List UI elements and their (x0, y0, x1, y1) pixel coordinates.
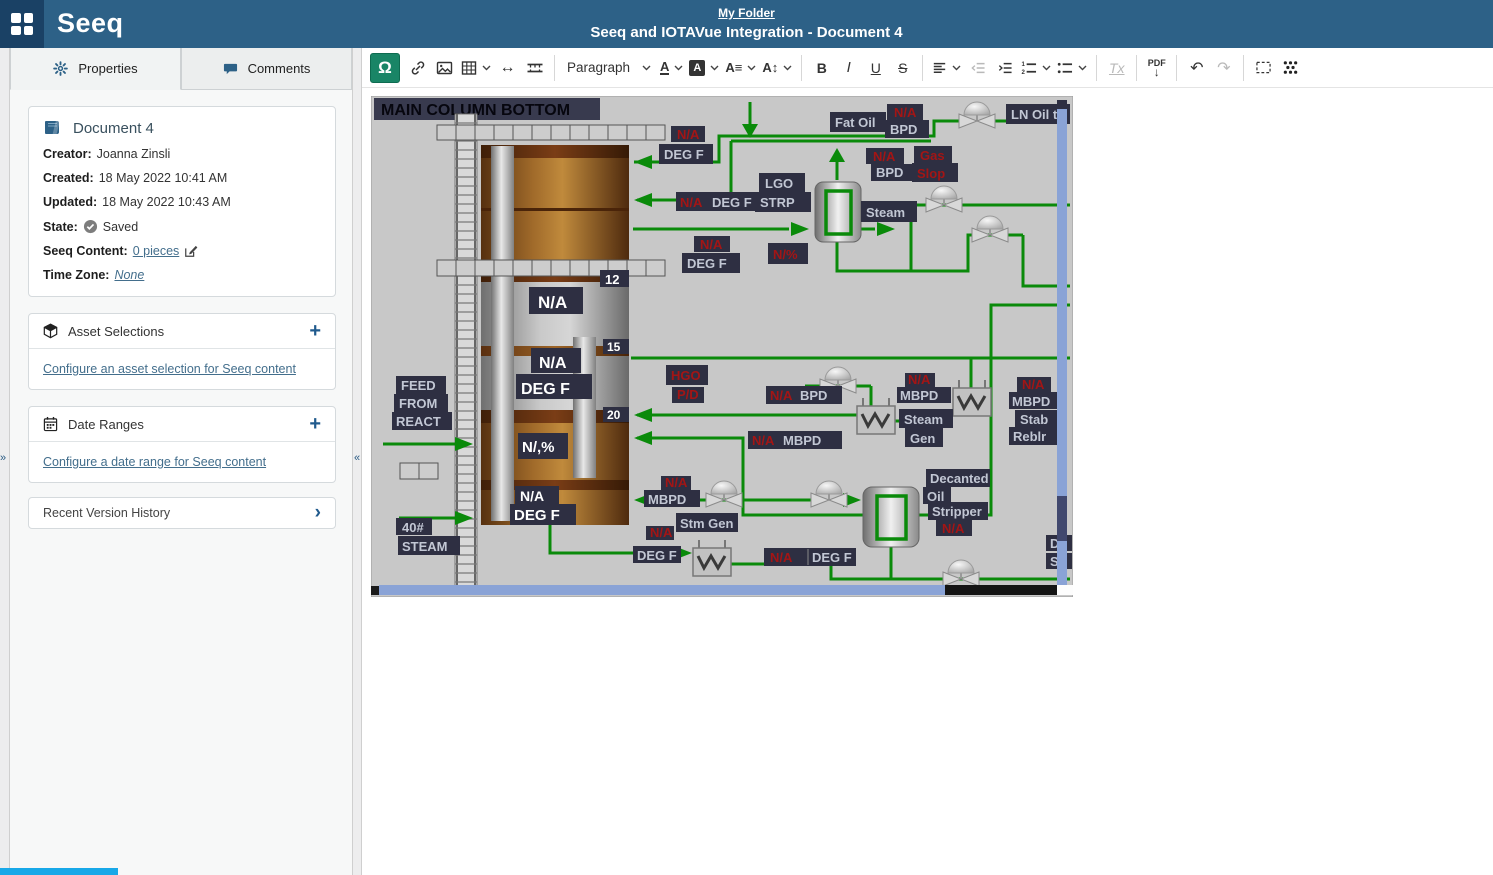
svg-text:N/A: N/A (908, 372, 931, 387)
redo-button: ↷ (1210, 53, 1237, 83)
state-label: State: (43, 220, 78, 234)
chevron-down-icon (482, 65, 491, 71)
svg-text:Decanted: Decanted (930, 471, 989, 486)
border-toggle-button[interactable] (1250, 53, 1277, 83)
loading-progress-bar (0, 868, 118, 875)
tab-comments-label: Comments (248, 61, 311, 76)
dot-pattern-icon (1282, 60, 1299, 75)
svg-text:REACT: REACT (396, 414, 441, 429)
bullet-list-icon (1057, 60, 1073, 75)
bold-button[interactable]: B (808, 53, 835, 83)
svg-text:LGO: LGO (765, 176, 793, 191)
time-zone-link[interactable]: None (114, 268, 144, 282)
bullet-list-button[interactable] (1054, 53, 1090, 83)
table-icon (461, 60, 477, 76)
insert-image-button[interactable] (431, 53, 458, 83)
document-title: Seeq and IOTAVue Integration - Document … (0, 24, 1493, 41)
paragraph-style-value: Paragraph (567, 60, 630, 75)
dashed-border-icon (1255, 60, 1272, 75)
calendar-icon (43, 416, 58, 432)
hmi-vertical-scrollbar[interactable] (1057, 100, 1067, 585)
chevron-down-icon (1042, 65, 1051, 71)
insert-seeq-content-button[interactable]: Ω (370, 53, 400, 83)
sidebar-expand-strip[interactable]: » (0, 48, 10, 875)
svg-text:N/A: N/A (538, 293, 567, 312)
numbered-list-icon: 1 2 (1021, 60, 1037, 75)
version-history-card[interactable]: Recent Version History › (28, 497, 336, 529)
svg-text:N/%: N/% (773, 247, 798, 262)
configure-asset-selection-link[interactable]: Configure an asset selection for Seeq co… (43, 362, 296, 376)
image-icon (436, 60, 453, 76)
svg-text:N/A: N/A (942, 521, 965, 536)
properties-sidebar: Properties Comments Document 4 Creator:J… (10, 48, 352, 875)
seeq-content-link[interactable]: 0 pieces (133, 244, 180, 258)
chevron-down-icon (674, 65, 683, 71)
font-color-glyph: A (660, 60, 669, 75)
updated-label: Updated: (43, 195, 97, 209)
svg-text:Gas: Gas (920, 148, 945, 163)
svg-text:20: 20 (607, 408, 621, 422)
background-color-button[interactable]: A (686, 53, 722, 83)
svg-text:N/A: N/A (665, 475, 688, 490)
journal-icon (43, 119, 63, 137)
svg-text:N/A: N/A (677, 127, 700, 142)
top-header: Seeq My Folder Seeq and IOTAVue Integrat… (0, 0, 1493, 48)
sidebar-collapse-strip[interactable]: « (352, 48, 362, 875)
updated-value: 18 May 2022 10:43 AM (102, 195, 231, 209)
svg-text:Reblr: Reblr (1013, 429, 1046, 444)
svg-text:40#: 40# (402, 520, 424, 535)
chevron-down-icon (952, 65, 961, 71)
diagram-title: MAIN COLUMN BOTTOM (374, 98, 600, 120)
svg-text:Steam: Steam (866, 205, 905, 220)
svg-text:N/A: N/A (770, 550, 793, 565)
state-value: Saved (103, 220, 138, 234)
svg-text:Stripper: Stripper (932, 504, 982, 519)
chevron-down-icon (710, 65, 719, 71)
editor-toolbar: Ω ↔ (362, 48, 1493, 88)
svg-text:MBPD: MBPD (900, 388, 938, 403)
svg-text:DEG F: DEG F (664, 147, 704, 162)
chevron-down-icon (783, 65, 792, 71)
svg-text:N/A: N/A (873, 149, 896, 164)
tab-properties-label: Properties (78, 61, 137, 76)
svg-text:BPD: BPD (876, 165, 903, 180)
collapse-chevron-icon[interactable]: « (354, 452, 360, 464)
svg-text:MBPD: MBPD (1012, 394, 1050, 409)
svg-text:DEG F: DEG F (712, 195, 752, 210)
font-family-button[interactable]: A≡ (722, 53, 759, 83)
created-label: Created: (43, 171, 94, 185)
svg-text:Stm Gen: Stm Gen (680, 516, 734, 531)
svg-text:Gen: Gen (910, 431, 935, 446)
svg-text:N/A: N/A (770, 388, 793, 403)
document-name: Document 4 (73, 120, 154, 137)
svg-text:15: 15 (607, 340, 621, 354)
configure-date-range-link[interactable]: Configure a date range for Seeq content (43, 455, 266, 469)
link-icon (410, 60, 426, 76)
date-ranges-title: Date Ranges (68, 417, 309, 432)
cube-icon (43, 323, 58, 339)
tab-properties[interactable]: Properties (10, 48, 181, 90)
document-canvas[interactable]: MAIN COLUMN BOTTOM (362, 88, 1493, 875)
svg-text:N/A: N/A (700, 237, 723, 252)
page-break-button[interactable] (521, 53, 548, 83)
italic-button[interactable]: I (835, 53, 862, 83)
lgo-stripper-vessel (815, 182, 861, 242)
font-color-button[interactable]: A (657, 53, 686, 83)
svg-text:N/A: N/A (520, 488, 544, 504)
horizontal-rule-button[interactable]: ↔ (494, 53, 521, 83)
svg-text:DEG F: DEG F (637, 548, 677, 563)
insert-table-button[interactable] (458, 53, 494, 83)
column-graphic (481, 145, 629, 525)
export-pdf-button[interactable]: PDF ↓ (1143, 53, 1170, 83)
clear-formatting-button: Tx (1103, 53, 1130, 83)
pattern-toggle-button[interactable] (1277, 53, 1304, 83)
font-family-glyph: A≡ (725, 60, 742, 75)
chevron-down-icon (747, 65, 756, 71)
chevron-down-icon (642, 65, 651, 71)
outdent-button (964, 53, 991, 83)
svg-text:2: 2 (1022, 69, 1026, 75)
hmi-horizontal-scrollbar[interactable] (371, 585, 1073, 595)
strikethrough-button[interactable]: S (889, 53, 916, 83)
add-date-range-button[interactable]: + (309, 416, 321, 432)
svg-text:BPD: BPD (800, 388, 827, 403)
svg-text:N/A: N/A (894, 105, 917, 120)
decanted-oil-stripper-vessel (863, 487, 919, 547)
creator-value: Joanna Zinsli (97, 147, 171, 161)
tab-comments[interactable]: Comments (181, 48, 352, 90)
time-zone-label: Time Zone: (43, 268, 109, 282)
background-color-glyph: A (689, 60, 705, 76)
add-asset-selection-button[interactable]: + (309, 323, 321, 339)
align-button[interactable] (929, 53, 964, 83)
svg-text:DEG F: DEG F (521, 381, 570, 398)
comment-bubble-icon (223, 61, 238, 76)
svg-text:DEG F: DEG F (687, 256, 727, 271)
svg-text:P/D: P/D (677, 387, 699, 402)
svg-text:HGO: HGO (671, 368, 701, 383)
svg-text:FROM: FROM (399, 396, 437, 411)
gear-icon (53, 61, 68, 76)
svg-text:12: 12 (605, 272, 619, 287)
underline-button[interactable]: U (862, 53, 889, 83)
svg-text:Fat Oil: Fat Oil (835, 115, 875, 130)
breadcrumb-my-folder[interactable]: My Folder (718, 6, 775, 20)
font-size-button[interactable]: A↕ (759, 53, 795, 83)
svg-text:Stab: Stab (1020, 412, 1048, 427)
svg-text:N/A: N/A (539, 355, 567, 372)
created-value: 18 May 2022 10:41 AM (99, 171, 228, 185)
paragraph-style-dropdown[interactable]: Paragraph (561, 53, 657, 83)
embedded-hmi-image[interactable]: MAIN COLUMN BOTTOM (371, 96, 1073, 597)
outdent-icon (970, 61, 986, 75)
hmi-diagram: MAIN COLUMN BOTTOM (371, 96, 1073, 597)
numbered-list-button[interactable]: 1 2 (1018, 53, 1054, 83)
svg-text:DEG F: DEG F (812, 550, 852, 565)
font-size-glyph: A↕ (762, 60, 778, 75)
align-left-icon (932, 61, 947, 75)
indent-icon (997, 61, 1013, 75)
undo-button[interactable]: ↶ (1183, 53, 1210, 83)
creator-label: Creator: (43, 147, 92, 161)
svg-text:BPD: BPD (890, 122, 917, 137)
svg-text:MBPD: MBPD (783, 433, 821, 448)
asset-selections-title: Asset Selections (68, 324, 309, 339)
editor-main: Ω ↔ (362, 48, 1493, 875)
expand-chevron-icon[interactable]: » (0, 452, 6, 464)
svg-text:N/A: N/A (752, 433, 775, 448)
svg-text:MBPD: MBPD (648, 492, 686, 507)
chevron-right-icon[interactable]: › (315, 506, 321, 520)
svg-text:Oil: Oil (927, 489, 944, 504)
svg-text:N/A: N/A (1022, 377, 1045, 392)
svg-text:DEG F: DEG F (514, 507, 560, 524)
svg-text:STEAM: STEAM (402, 539, 448, 554)
download-arrow-icon: ↓ (1154, 68, 1160, 77)
svg-text:STRP: STRP (760, 195, 795, 210)
indent-button[interactable] (991, 53, 1018, 83)
chevron-down-icon (1078, 65, 1087, 71)
svg-text:Slop: Slop (917, 166, 945, 181)
svg-text:N/,%: N/,% (522, 439, 555, 456)
svg-text:1: 1 (1022, 61, 1026, 68)
svg-text:N/A: N/A (650, 525, 673, 540)
saved-check-icon (83, 219, 98, 234)
svg-text:Steam: Steam (904, 412, 943, 427)
svg-text:FEED: FEED (401, 378, 436, 393)
seeq-content-label: Seeq Content: (43, 244, 128, 258)
page-break-icon (526, 60, 544, 76)
edit-icon[interactable] (184, 244, 198, 258)
link-button[interactable] (404, 53, 431, 83)
document-info-card: Document 4 Creator:Joanna Zinsli Created… (28, 106, 336, 297)
svg-text:N/A: N/A (680, 195, 703, 210)
asset-selections-card: Asset Selections + Configure an asset se… (28, 313, 336, 390)
date-ranges-card: Date Ranges + Configure a date range for… (28, 406, 336, 483)
version-history-title: Recent Version History (43, 506, 315, 520)
